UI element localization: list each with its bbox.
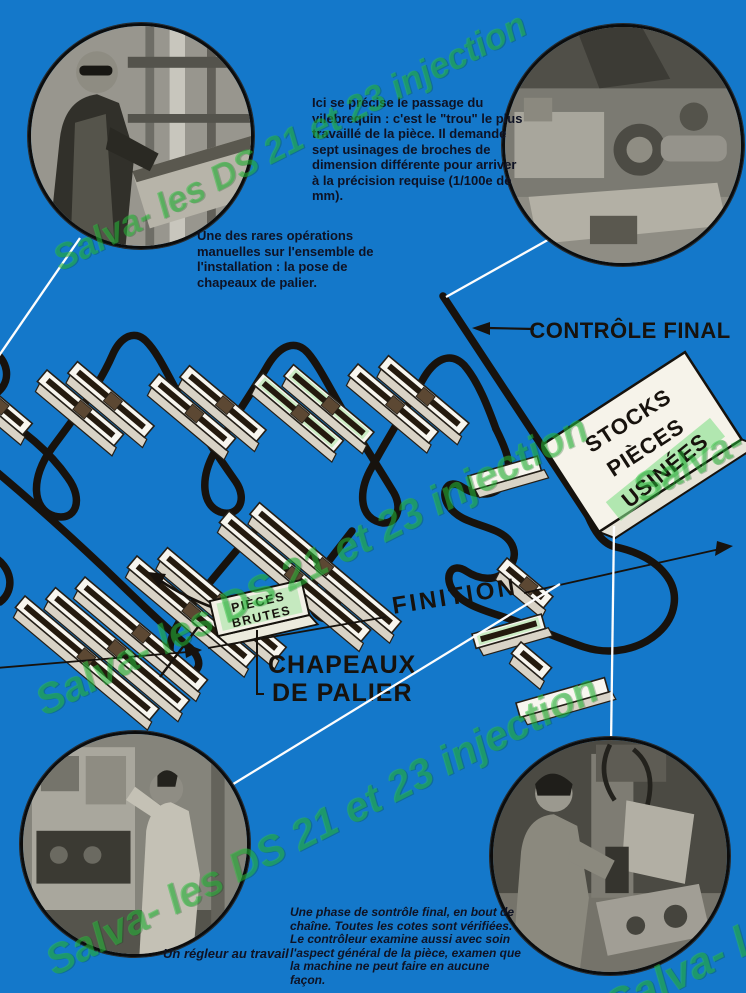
controle-final-label: CONTRÔLE FINAL [529,318,730,343]
photo-top-left-worker [28,23,254,249]
controle-final-callout: CONTRÔLE FINAL [472,318,731,343]
pieces-brutes-slab: PIÈCES BRUTES [210,579,318,647]
chapeaux-label-2: DE PALIER [272,679,413,707]
machine-bar [516,676,616,726]
machine-bar [506,642,556,689]
caption-drilling: Ici se précise le passage du vilebrequin… [312,95,524,204]
photo-bottom-left-regleur [20,731,250,957]
caption-manual-operation: Une des rares opérations manuelles sur l… [197,228,389,290]
magazine-page: STOCKS PIÈCES USINÉES PIÈCES BRUTES CONT… [0,0,746,993]
chapeaux-callout: CHAPEAUX DE PALIER [257,630,416,707]
chapeaux-label-1: CHAPEAUX [268,651,416,679]
stocks-slab: STOCKS PIÈCES USINÉES [542,347,746,544]
caption-final-control: Une phase de sontrôle final, en bout de … [290,906,528,988]
caption-regleur: Un régleur au travail [163,947,323,961]
photo-top-right-machine [502,24,744,266]
